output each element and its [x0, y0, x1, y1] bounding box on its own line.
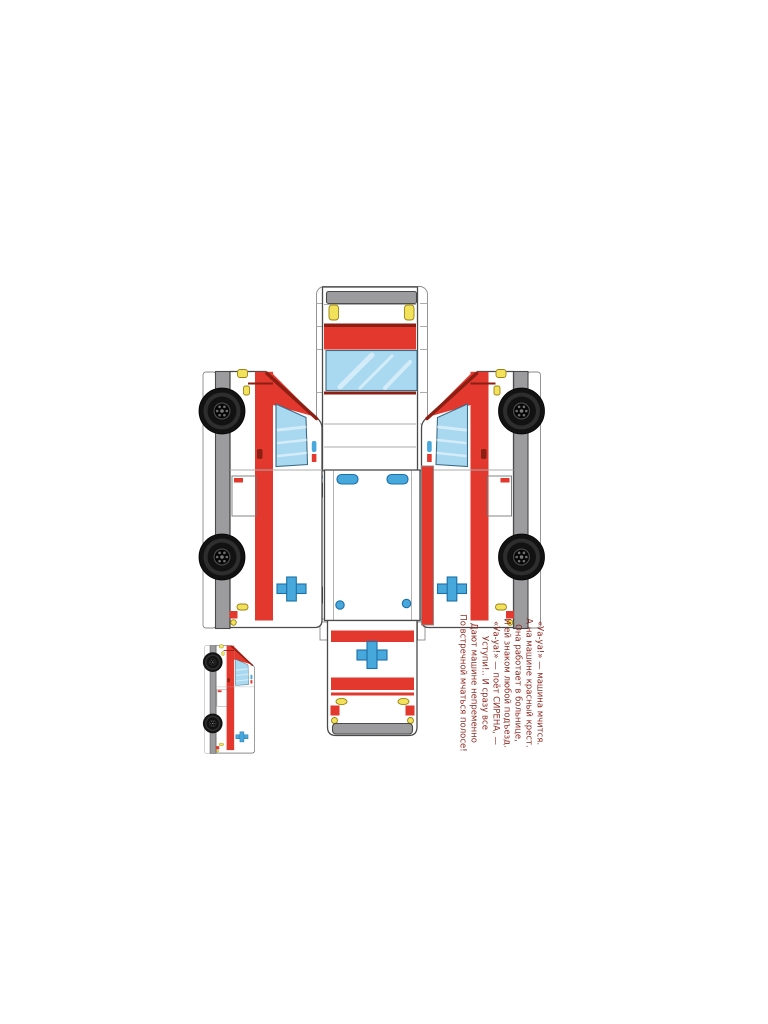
taillight-icon — [336, 698, 347, 704]
poem-line: И ей знаком любой подъезд. — [501, 613, 512, 754]
door-red-line — [331, 693, 414, 696]
headlight-icon — [405, 305, 415, 320]
door-red-band — [331, 678, 414, 691]
poem-line: Дают машине непременно — [468, 613, 479, 754]
rear-marker-light — [408, 718, 414, 724]
poem: «Уа-уа!» — машина мчится. А на машине кр… — [457, 613, 545, 754]
taillight-icon — [398, 698, 409, 704]
assembled-preview — [203, 645, 255, 754]
front-red-band — [324, 327, 416, 350]
right-side-panel — [422, 370, 545, 629]
rear-wall — [325, 470, 421, 621]
hood-edge — [324, 324, 416, 328]
front-top-strip — [317, 287, 428, 471]
beacon-light-icon — [337, 475, 358, 485]
rear-door-flap — [320, 621, 425, 736]
headlight-icon — [329, 305, 339, 320]
rear-reflector — [331, 706, 340, 716]
rear-bumper — [333, 724, 413, 735]
front-bumper — [327, 292, 417, 304]
rear-wall-panel — [317, 470, 428, 621]
right-panel-red-edge — [422, 466, 434, 625]
rear-marker-light — [332, 718, 338, 724]
windshield — [326, 351, 417, 391]
rear-window-dot — [336, 601, 344, 609]
beacon-light-icon — [387, 475, 408, 485]
windshield-base — [324, 392, 416, 395]
papercraft-sheet: «Уа-уа!» — машина мчится. А на машине кр… — [0, 0, 768, 1024]
rear-window-dot — [402, 599, 410, 607]
papercraft-drawing — [0, 0, 768, 1024]
poem-line: «Уа-уа!» — машина мчится. — [534, 613, 545, 754]
poem-line: Она работает в больнице, — [512, 613, 523, 754]
poem-line: По встречной мчаться полосе! — [457, 613, 468, 754]
poem-line: «Уа-уа!» — поёт СИРЕНА, — — [490, 613, 501, 754]
poem-line: Уступи!.. И сразу все — [479, 613, 490, 754]
rear-reflector — [406, 706, 415, 716]
poem-line: А на машине красный крест. — [523, 613, 534, 754]
door-red-stripe — [331, 631, 414, 643]
left-side-panel — [199, 370, 322, 629]
